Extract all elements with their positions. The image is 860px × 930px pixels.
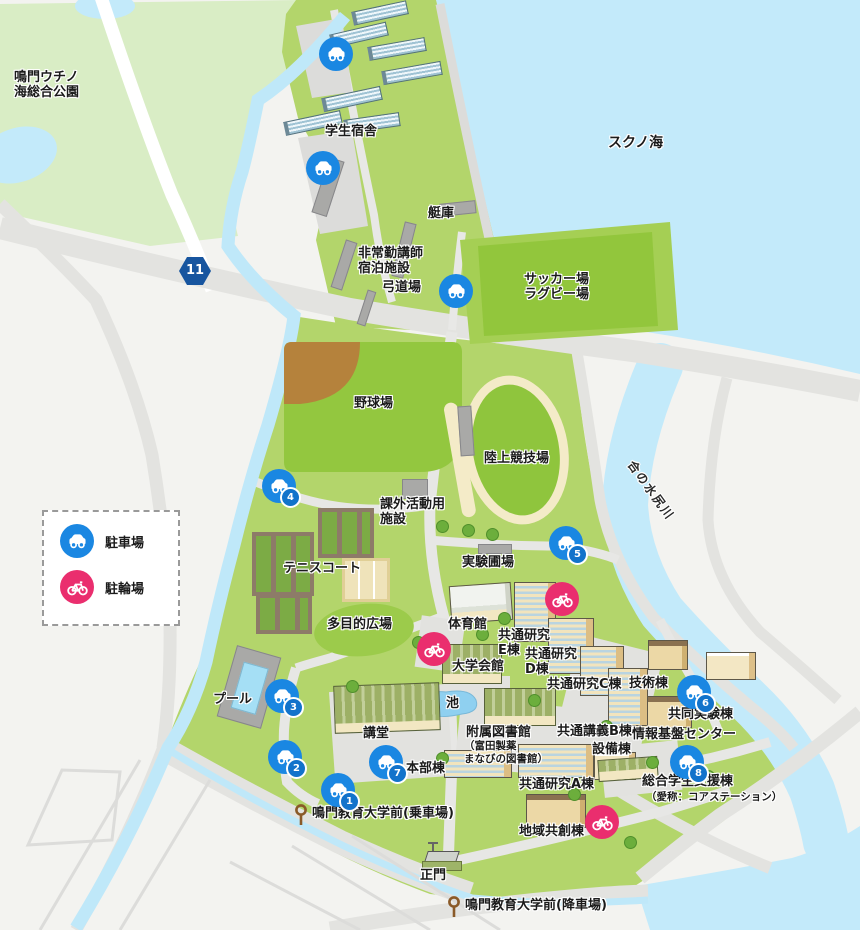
parking-marker-7: 7 [369,745,403,779]
label-library: 附属図書館 [466,725,531,740]
car-icon [445,280,468,303]
tree-icon [346,680,359,693]
label-auditorium: 講堂 [363,726,389,741]
building-experimental-shed [478,544,512,554]
tree-icon [528,694,541,707]
label-baseball: 野球場 [354,396,393,411]
campus-map: 鳴門ウチノ 海総合公園 スクノ海 合の水尻川 学生宿舎 艇庫 非常勤講師 宿泊施… [0,0,860,930]
label-park: 鳴門ウチノ 海総合公園 [14,70,79,100]
label-multipurpose: 多目的広場 [327,617,392,632]
parking-number: 1 [339,791,360,812]
label-research-c: 共通研究C棟 [547,677,622,692]
label-tech: 技術棟 [629,676,668,691]
legend-parking-row: 駐車場 [60,524,178,558]
building-library [484,688,556,726]
bicycle-marker [585,805,619,839]
label-tennis: テニスコート [283,561,361,576]
bicycle-marker [60,570,94,604]
parking-number: 5 [567,544,588,565]
bicycle-icon [423,638,446,661]
label-pool: プール [213,692,252,707]
label-boathouse: 艇庫 [428,206,454,221]
building-joint-lab [706,652,756,680]
parking-marker-6: 6 [677,675,711,709]
label-experimental-field: 実験圃場 [462,555,514,570]
bicycle-marker [417,632,451,666]
tree-icon [646,756,659,769]
parking-marker-5: 5 [549,526,583,560]
parking-number: 4 [280,487,301,508]
parking-number: 2 [286,758,307,779]
label-info-center: 情報基盤センター [632,727,736,742]
label-research-a: 共通研究A棟 [519,777,594,792]
parking-marker-4: 4 [262,469,296,503]
building-tech [648,640,688,670]
label-track: 陸上競技場 [484,451,549,466]
parking-number: 8 [688,763,709,784]
label-equipment: 設備棟 [592,742,631,757]
label-lecturer-lodging: 非常勤講師 宿泊施設 [358,246,423,276]
bicycle-marker [545,582,579,616]
label-main-gate: 正門 [420,868,446,883]
label-extracurricular: 課外活動用 施設 [380,497,445,527]
legend-parking-label: 駐車場 [105,532,144,551]
bus-stop-alighting-icon [447,895,461,919]
parking-marker [60,524,94,558]
label-gym: 体育館 [448,617,487,632]
label-support-sub: （愛称：コアステーション） [646,791,782,804]
building-extracurricular [402,479,428,499]
bicycle-icon [66,576,89,599]
label-pond: 池 [446,696,459,711]
legend-bicycle-label: 駐輪場 [105,578,144,597]
bus-stop-boarding-icon [294,803,308,827]
parking-marker-8: 8 [670,745,704,779]
car-icon [312,157,335,180]
main-gate-icon [422,842,462,870]
tennis-courts-1 [318,508,374,558]
label-research-d: 共通研究 D棟 [525,647,577,677]
parking-number: 6 [695,693,716,714]
parking-marker-1: 1 [321,773,355,807]
parking-marker-3: 3 [265,679,299,713]
tree-icon [462,524,475,537]
label-dorm: 学生宿舎 [325,124,377,139]
label-library-sub: （富田製薬 まなびの図書館） [464,740,548,765]
parking-marker [306,151,340,185]
tree-icon [486,528,499,541]
label-lecture-b: 共通講義B棟 [557,724,632,739]
legend-bicycle-row: 駐輪場 [60,570,178,604]
bicycle-icon [551,588,574,611]
car-icon [66,530,89,553]
legend: 駐車場 駐輪場 [42,510,180,626]
parking-marker-2: 2 [268,740,302,774]
tree-icon [498,612,511,625]
label-univ-hall: 大学会館 [452,659,504,674]
car-icon [325,43,348,66]
parking-number: 3 [283,697,304,718]
parking-number: 7 [387,763,408,784]
label-soccer-rugby: サッカー場 ラグビー場 [524,272,589,302]
label-archery: 弓道場 [382,280,421,295]
label-bus-boarding: 鳴門教育大学前(乗車場) [312,806,454,821]
label-headquarters: 本部棟 [406,761,445,776]
parking-marker [439,274,473,308]
tree-icon [624,836,637,849]
tennis-courts-3 [256,594,312,634]
label-bus-alighting: 鳴門教育大学前(降車場) [465,898,607,913]
label-sea: スクノ海 [608,136,663,151]
bicycle-icon [591,811,614,834]
parking-marker [319,37,353,71]
label-regional: 地域共創棟 [519,824,584,839]
